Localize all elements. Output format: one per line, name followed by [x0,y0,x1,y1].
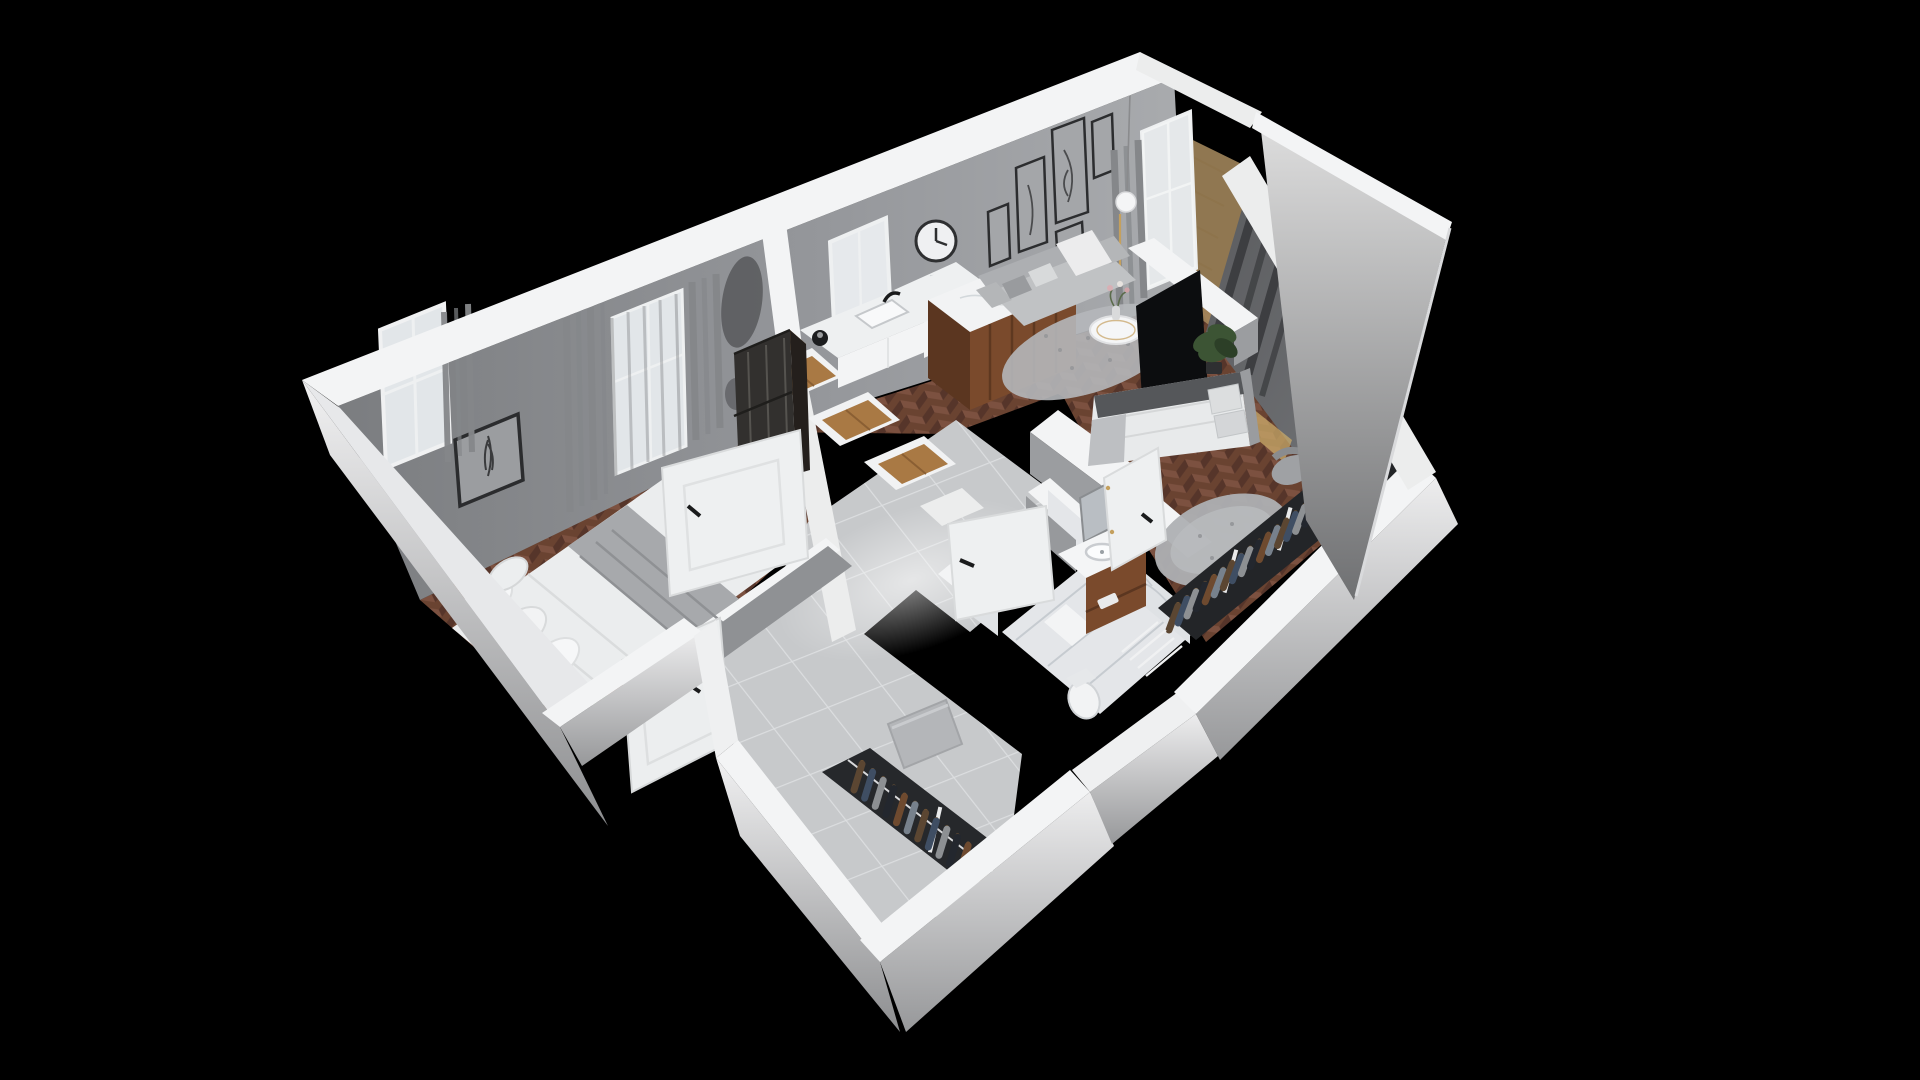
flower-1 [1107,285,1113,291]
render-stage [0,0,1920,1080]
hinge-top [1106,486,1110,490]
plant-pot [1206,362,1222,374]
wall-clock [916,221,956,261]
flower-2 [1117,281,1123,287]
vase [1112,306,1120,320]
kettle-lid [817,332,823,338]
pillow-1 [1208,384,1242,414]
frame-small-left [988,204,1010,266]
bathroom-door [948,506,1054,620]
basin-drain [1100,550,1104,554]
frame-large [1052,118,1088,223]
foot-blanket [1088,414,1126,466]
frame-small-right [1092,114,1114,178]
lamp-globe [1116,192,1136,212]
floorplan-render [0,0,1920,1080]
flower-3 [1124,287,1129,292]
hinge-bottom [1110,530,1114,534]
